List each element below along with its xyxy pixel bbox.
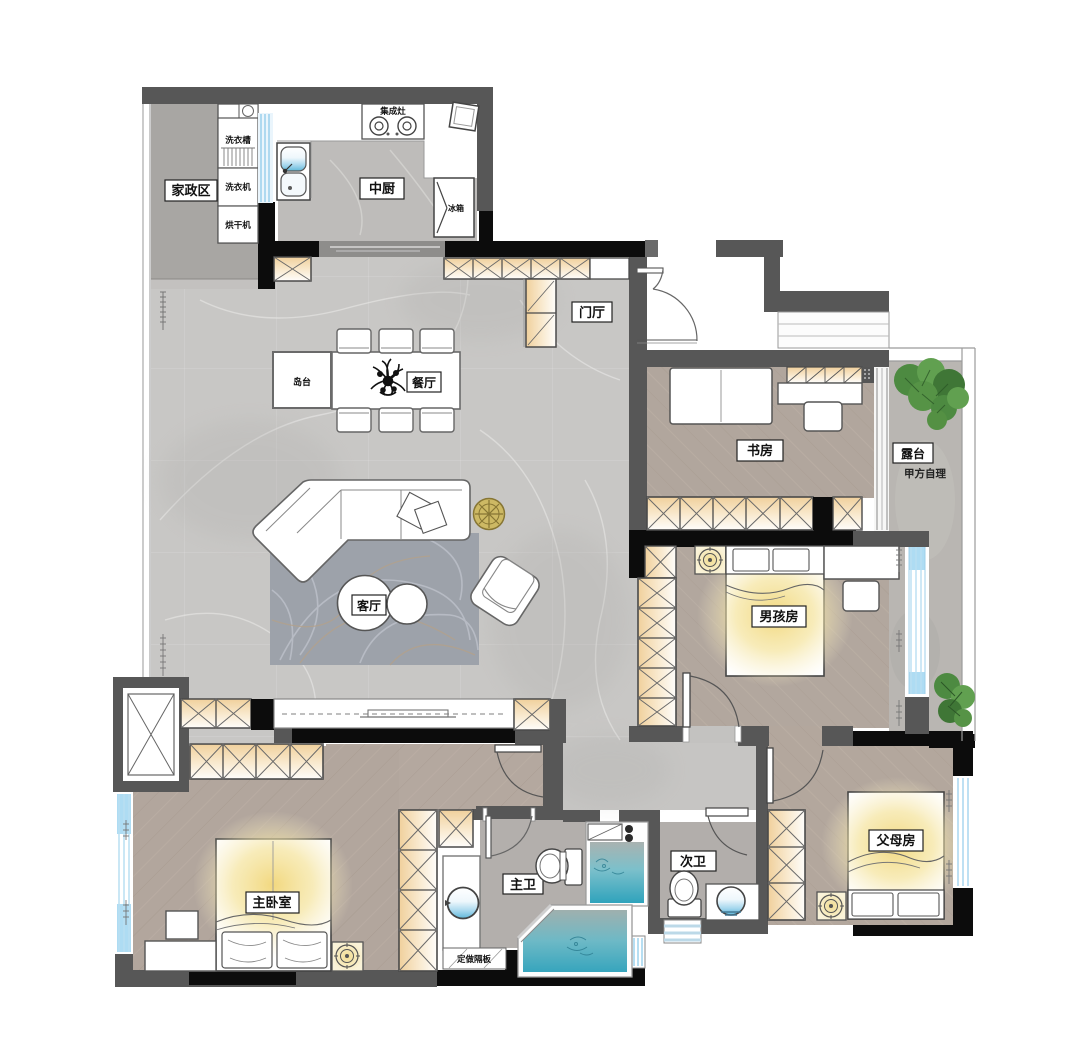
svg-text:男孩房: 男孩房	[759, 609, 798, 624]
svg-text:集成灶: 集成灶	[379, 106, 406, 116]
svg-text:客厅: 客厅	[356, 598, 381, 613]
svg-text:中厨: 中厨	[369, 181, 395, 196]
svg-text:烘干机: 烘干机	[225, 220, 251, 230]
svg-text:洗衣机: 洗衣机	[225, 182, 251, 192]
svg-text:露台: 露台	[901, 446, 925, 461]
svg-text:次卫: 次卫	[680, 854, 706, 869]
svg-text:冰箱: 冰箱	[448, 203, 464, 213]
svg-text:主卧室: 主卧室	[252, 895, 291, 910]
svg-text:主卫: 主卫	[510, 877, 536, 892]
svg-text:岛台: 岛台	[293, 376, 311, 387]
svg-text:甲方自理: 甲方自理	[904, 467, 946, 480]
svg-text:门厅: 门厅	[579, 305, 605, 320]
svg-text:定做隔板: 定做隔板	[456, 954, 492, 964]
svg-text:餐厅: 餐厅	[412, 375, 436, 390]
svg-text:父母房: 父母房	[875, 833, 915, 848]
svg-text:洗衣槽: 洗衣槽	[225, 135, 251, 145]
svg-text:家政区: 家政区	[171, 183, 210, 198]
svg-text:书房: 书房	[747, 443, 773, 458]
